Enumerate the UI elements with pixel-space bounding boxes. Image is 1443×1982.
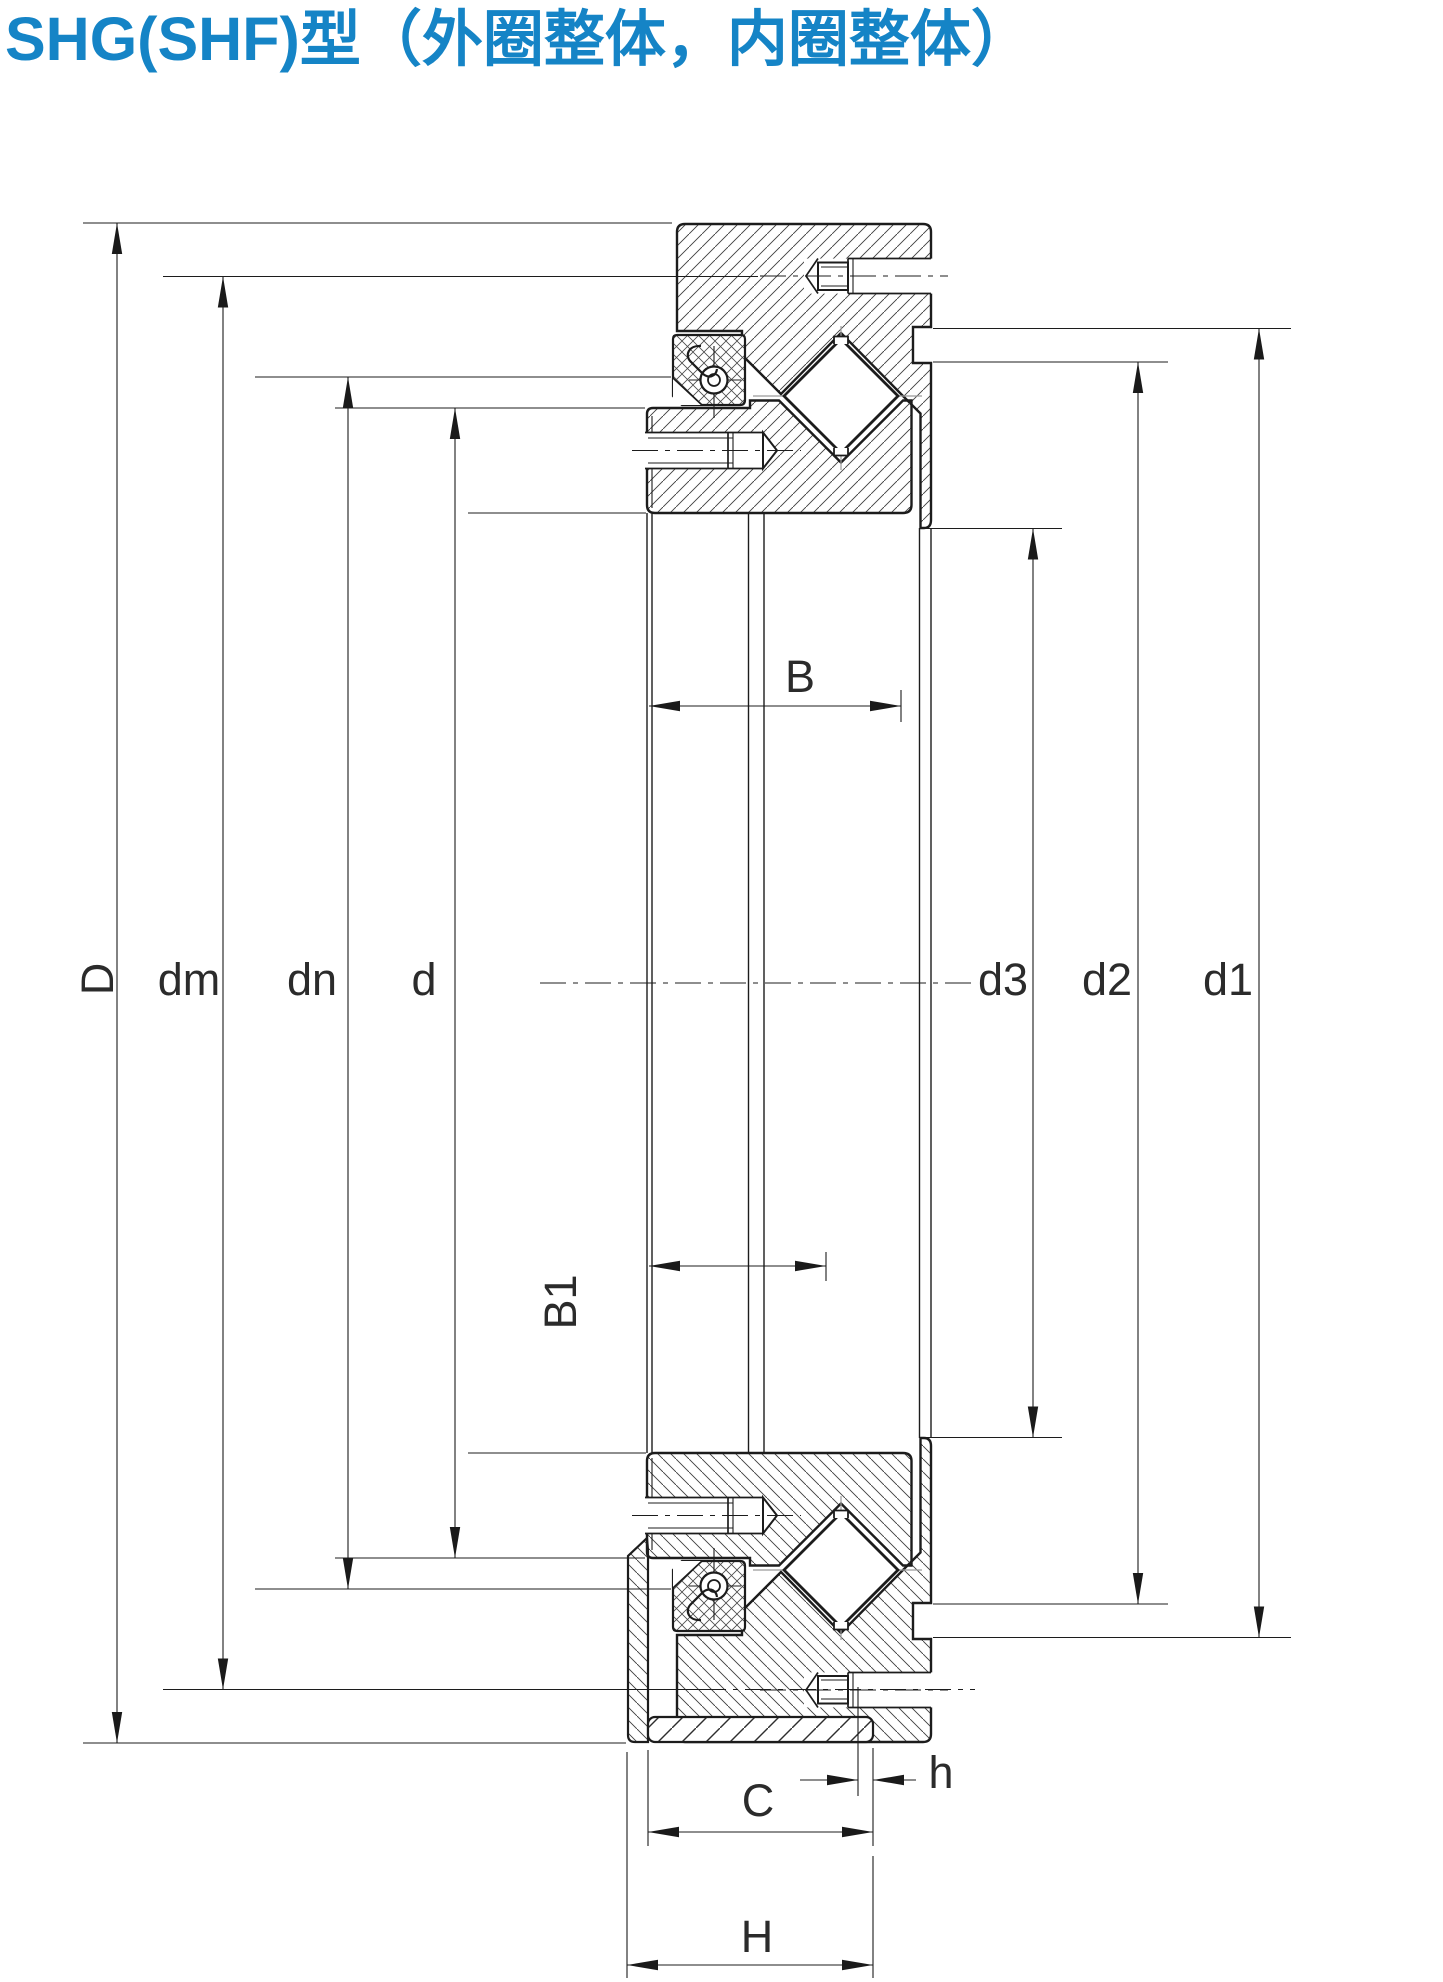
dim-label-d: d <box>411 954 436 1005</box>
dim-label-C: C <box>742 1775 775 1826</box>
dim-label-D: D <box>72 963 123 996</box>
dim-label-B1: B1 <box>535 1274 586 1329</box>
dim-label-dn: dn <box>287 954 337 1005</box>
drawing-page: SHG(SHF)型（外圈整体，内圈整体） <box>0 0 1443 1982</box>
dim-label-h: h <box>928 1747 953 1798</box>
dim-label-d3: d3 <box>978 954 1028 1005</box>
dim-label-d2: d2 <box>1082 954 1132 1005</box>
dimension-labels: D dm dn d d3 d2 d1 B B1 C h H <box>72 651 1253 1962</box>
bearing-section-drawing: SHG(SHF)型（外圈整体，内圈整体） <box>0 0 1443 1982</box>
bearing-upper-half-section <box>632 224 948 528</box>
page-title: SHG(SHF)型（外圈整体，内圈整体） <box>5 5 1032 73</box>
inner-ring-bottom-strip <box>648 1717 873 1742</box>
dim-label-H: H <box>741 1911 774 1962</box>
dim-label-dm: dm <box>158 954 221 1005</box>
inner-ring-flange-foot <box>628 1538 648 1742</box>
bearing-lower-half-section <box>632 1438 948 1742</box>
roller-corner-relief-top <box>834 337 848 345</box>
dim-label-B: B <box>785 651 815 702</box>
roller-corner-relief-bottom <box>834 448 848 456</box>
dim-label-d1: d1 <box>1203 954 1253 1005</box>
